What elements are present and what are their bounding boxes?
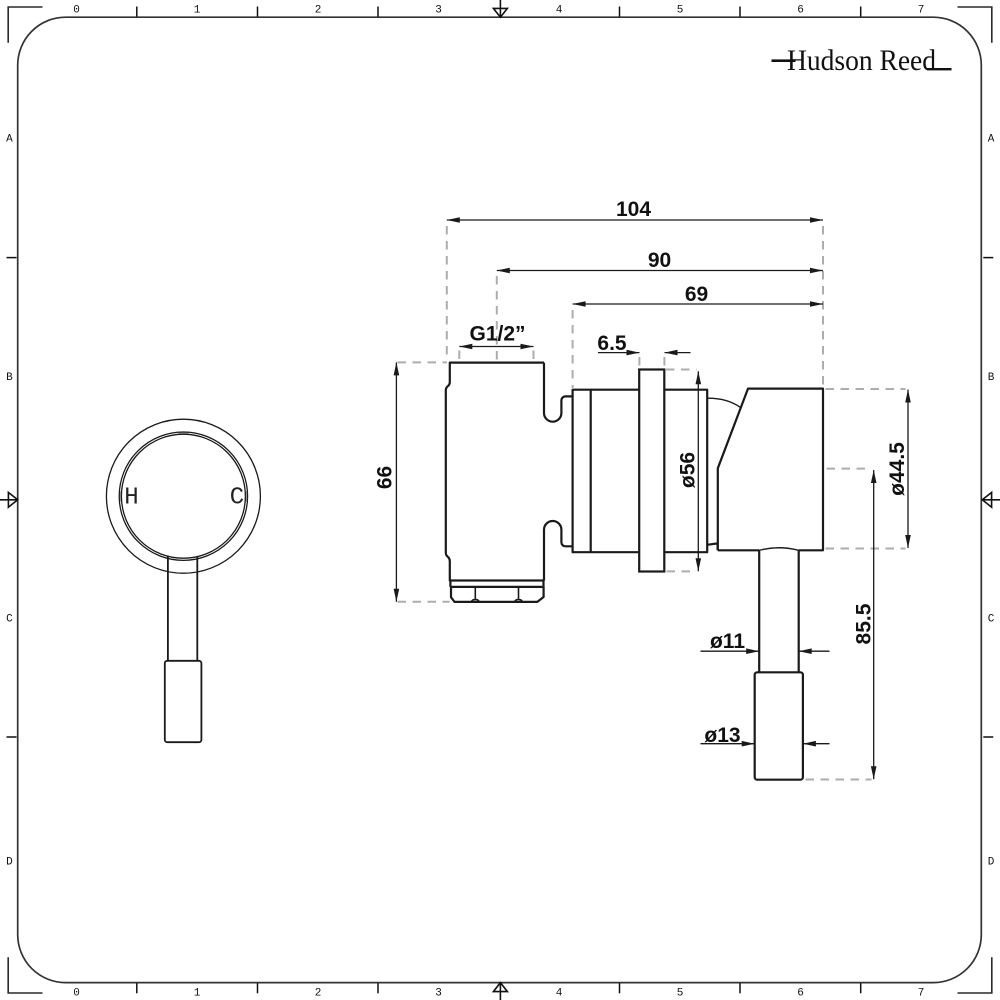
svg-text:7: 7 bbox=[918, 987, 925, 999]
svg-text:66: 66 bbox=[374, 466, 397, 489]
svg-text:5: 5 bbox=[677, 987, 684, 999]
svg-text:69: 69 bbox=[685, 283, 708, 306]
svg-text:ø11: ø11 bbox=[710, 630, 745, 653]
svg-text:ø44.5: ø44.5 bbox=[886, 442, 909, 496]
svg-text:1: 1 bbox=[194, 987, 201, 999]
svg-text:6: 6 bbox=[797, 987, 804, 999]
svg-text:ø13: ø13 bbox=[704, 724, 740, 747]
svg-text:A: A bbox=[988, 134, 995, 146]
svg-text:Hudson Reed: Hudson Reed bbox=[787, 44, 936, 77]
svg-text:D: D bbox=[988, 857, 995, 869]
svg-text:G1/2”: G1/2” bbox=[469, 323, 525, 346]
svg-text:H: H bbox=[124, 485, 138, 512]
svg-text:6: 6 bbox=[797, 5, 804, 17]
svg-text:B: B bbox=[6, 372, 13, 384]
svg-text:ø56: ø56 bbox=[677, 452, 700, 488]
svg-text:2: 2 bbox=[315, 5, 322, 17]
svg-text:104: 104 bbox=[616, 198, 651, 221]
svg-text:90: 90 bbox=[648, 249, 671, 272]
svg-text:0: 0 bbox=[73, 987, 80, 999]
svg-text:2: 2 bbox=[315, 987, 322, 999]
svg-text:0: 0 bbox=[73, 5, 80, 17]
svg-text:6.5: 6.5 bbox=[597, 332, 627, 355]
svg-text:4: 4 bbox=[556, 987, 563, 999]
svg-text:85.5: 85.5 bbox=[853, 603, 876, 644]
svg-text:5: 5 bbox=[677, 5, 684, 17]
svg-text:3: 3 bbox=[435, 5, 442, 17]
svg-text:C: C bbox=[230, 485, 244, 512]
svg-text:B: B bbox=[988, 372, 995, 384]
svg-text:3: 3 bbox=[435, 987, 442, 999]
svg-text:A: A bbox=[6, 134, 13, 146]
svg-text:1: 1 bbox=[194, 5, 201, 17]
svg-text:4: 4 bbox=[556, 5, 563, 17]
svg-text:7: 7 bbox=[918, 5, 925, 17]
svg-text:C: C bbox=[988, 614, 995, 626]
svg-text:D: D bbox=[6, 857, 13, 869]
svg-text:C: C bbox=[6, 614, 13, 626]
